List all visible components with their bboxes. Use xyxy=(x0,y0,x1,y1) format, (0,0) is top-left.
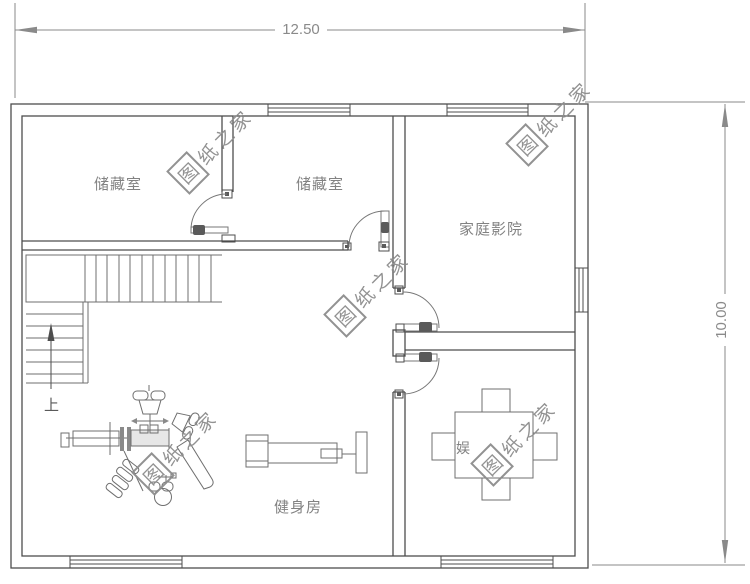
gym-equipment xyxy=(61,385,367,506)
floor-plan-canvas: 储藏室 储藏室 家庭影院 健身房 娱 上 12.50 10.00 图纸之家 图纸… xyxy=(0,0,750,584)
window-top-1 xyxy=(268,104,350,116)
chair-left xyxy=(432,433,455,460)
window-bottom-1 xyxy=(70,556,182,568)
window-top-2 xyxy=(447,104,528,116)
stairs-up-label: 上 xyxy=(44,394,60,415)
rowing-machine xyxy=(246,432,367,473)
room-label-gym: 健身房 xyxy=(274,496,322,517)
chair-top xyxy=(482,389,510,412)
dimension-width-label: 12.50 xyxy=(275,21,327,39)
room-label-home-theater: 家庭影院 xyxy=(459,218,523,239)
dimension-height-label: 10.00 xyxy=(713,294,731,346)
door-home-theater xyxy=(396,292,439,332)
door-storage-right xyxy=(349,211,389,251)
door-storage-left xyxy=(191,194,228,235)
window-bottom-2 xyxy=(441,556,553,568)
room-label-storage-right: 储藏室 xyxy=(296,173,344,194)
window-right xyxy=(575,268,588,312)
room-label-entertainment: 娱 xyxy=(456,438,471,458)
stairs xyxy=(26,255,222,389)
stairs-up-arrow xyxy=(48,323,55,389)
room-label-storage-left: 储藏室 xyxy=(94,173,142,194)
door-entertainment xyxy=(396,352,439,394)
